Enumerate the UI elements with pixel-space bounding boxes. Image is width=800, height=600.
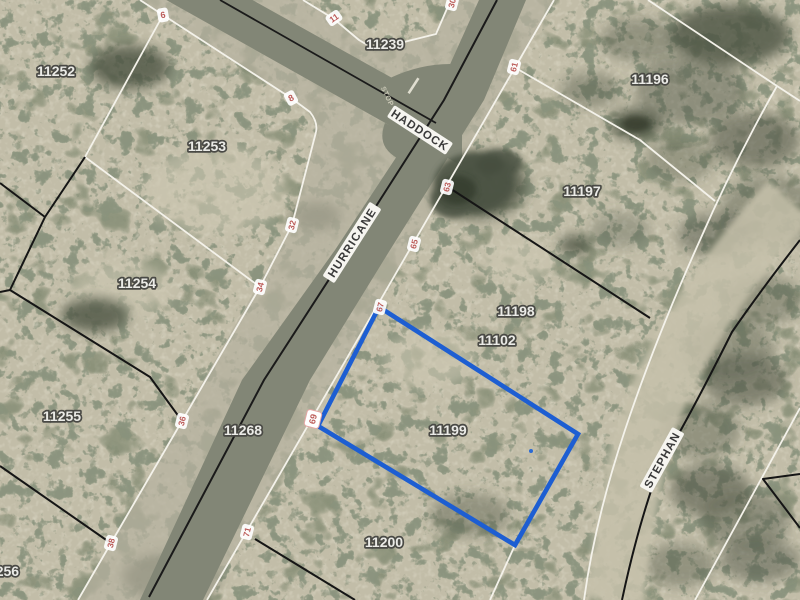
svg-text:11239: 11239 <box>366 36 404 52</box>
svg-text:11253: 11253 <box>188 138 226 154</box>
svg-text:11200: 11200 <box>365 534 403 550</box>
svg-text:11196: 11196 <box>631 71 669 87</box>
svg-text:11102: 11102 <box>478 332 516 348</box>
svg-text:11198: 11198 <box>497 303 535 319</box>
svg-text:11256: 11256 <box>0 563 19 579</box>
svg-text:11199: 11199 <box>429 422 467 438</box>
svg-text:11254: 11254 <box>118 275 156 291</box>
svg-text:11252: 11252 <box>37 63 75 79</box>
svg-text:11268: 11268 <box>224 422 262 438</box>
svg-text:11197: 11197 <box>563 183 601 199</box>
svg-text:11255: 11255 <box>43 408 81 424</box>
